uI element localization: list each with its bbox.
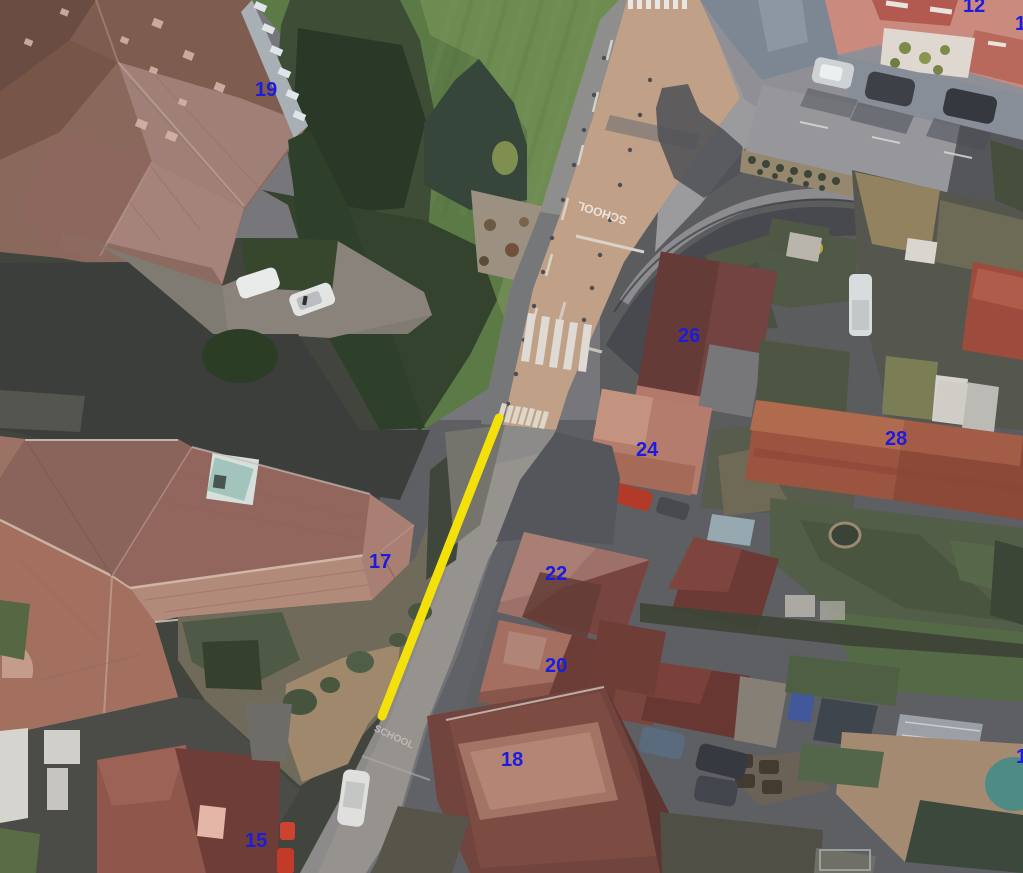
svg-text:20: 20 bbox=[545, 655, 567, 677]
svg-text:26: 26 bbox=[678, 325, 700, 347]
svg-text:18: 18 bbox=[501, 749, 523, 771]
svg-text:22: 22 bbox=[545, 563, 567, 585]
svg-text:1: 1 bbox=[1015, 13, 1023, 35]
svg-text:24: 24 bbox=[636, 439, 659, 461]
svg-text:1: 1 bbox=[1016, 746, 1023, 768]
svg-text:28: 28 bbox=[885, 428, 907, 450]
svg-text:15: 15 bbox=[245, 830, 267, 852]
svg-text:17: 17 bbox=[369, 551, 391, 573]
svg-text:19: 19 bbox=[255, 79, 277, 101]
svg-text:12: 12 bbox=[963, 0, 985, 17]
